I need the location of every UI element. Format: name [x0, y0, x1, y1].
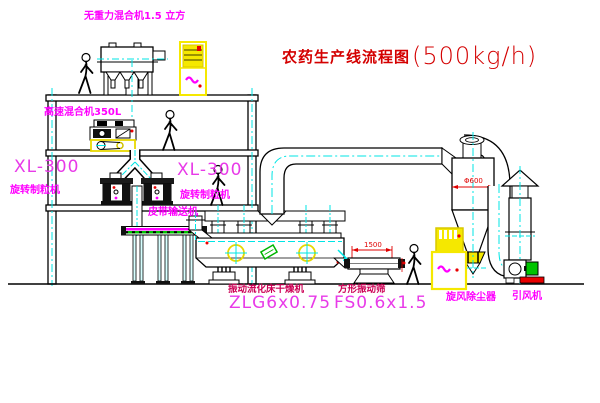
control-cabinet-top: [180, 42, 206, 95]
diagram-canvas: 农药生产线流程图 (500kg/h) 无重力混合机1.5 立方 高速混合机350…: [0, 0, 600, 403]
exhaust-duct: [205, 148, 456, 240]
dim-sieve-length: 1500: [364, 242, 382, 249]
label-sieve-model: FS0.6x1.5: [334, 295, 427, 312]
label-granulator-left-name: 旋转制粒机: [10, 186, 60, 196]
label-high-speed-mixer: 高速混合机350L: [44, 108, 121, 118]
label-cyclone: 旋风除尘器: [446, 293, 496, 303]
person-ground: [407, 245, 421, 285]
title-text: 农药生产线流程图: [282, 46, 410, 67]
label-granulator-mid-model: XL-300: [177, 162, 242, 179]
label-granulator-left-model: XL-300: [14, 159, 79, 176]
square-vibrating-sieve: [344, 246, 406, 283]
person-floor2: [163, 111, 177, 151]
label-fan: 引风机: [512, 292, 542, 302]
granulator-left: [100, 173, 133, 205]
label-granulator-mid-name: 旋转制粒机: [180, 191, 230, 201]
label-dryer-model: ZLG6x0.75: [229, 295, 331, 312]
page-title: 农药生产线流程图 (500kg/h): [282, 42, 537, 70]
title-capacity: (500kg/h): [412, 42, 537, 70]
control-cabinet-right: [432, 228, 466, 289]
person-roof: [79, 54, 93, 94]
high-speed-mixer: [90, 120, 136, 151]
dim-cyclone-diameter: Φ600: [464, 178, 483, 185]
label-belt-conveyor: 皮带输送机: [148, 208, 198, 218]
induced-draft-fan: [504, 260, 544, 283]
label-weightless-mixer: 无重力混合机1.5 立方: [84, 12, 185, 22]
